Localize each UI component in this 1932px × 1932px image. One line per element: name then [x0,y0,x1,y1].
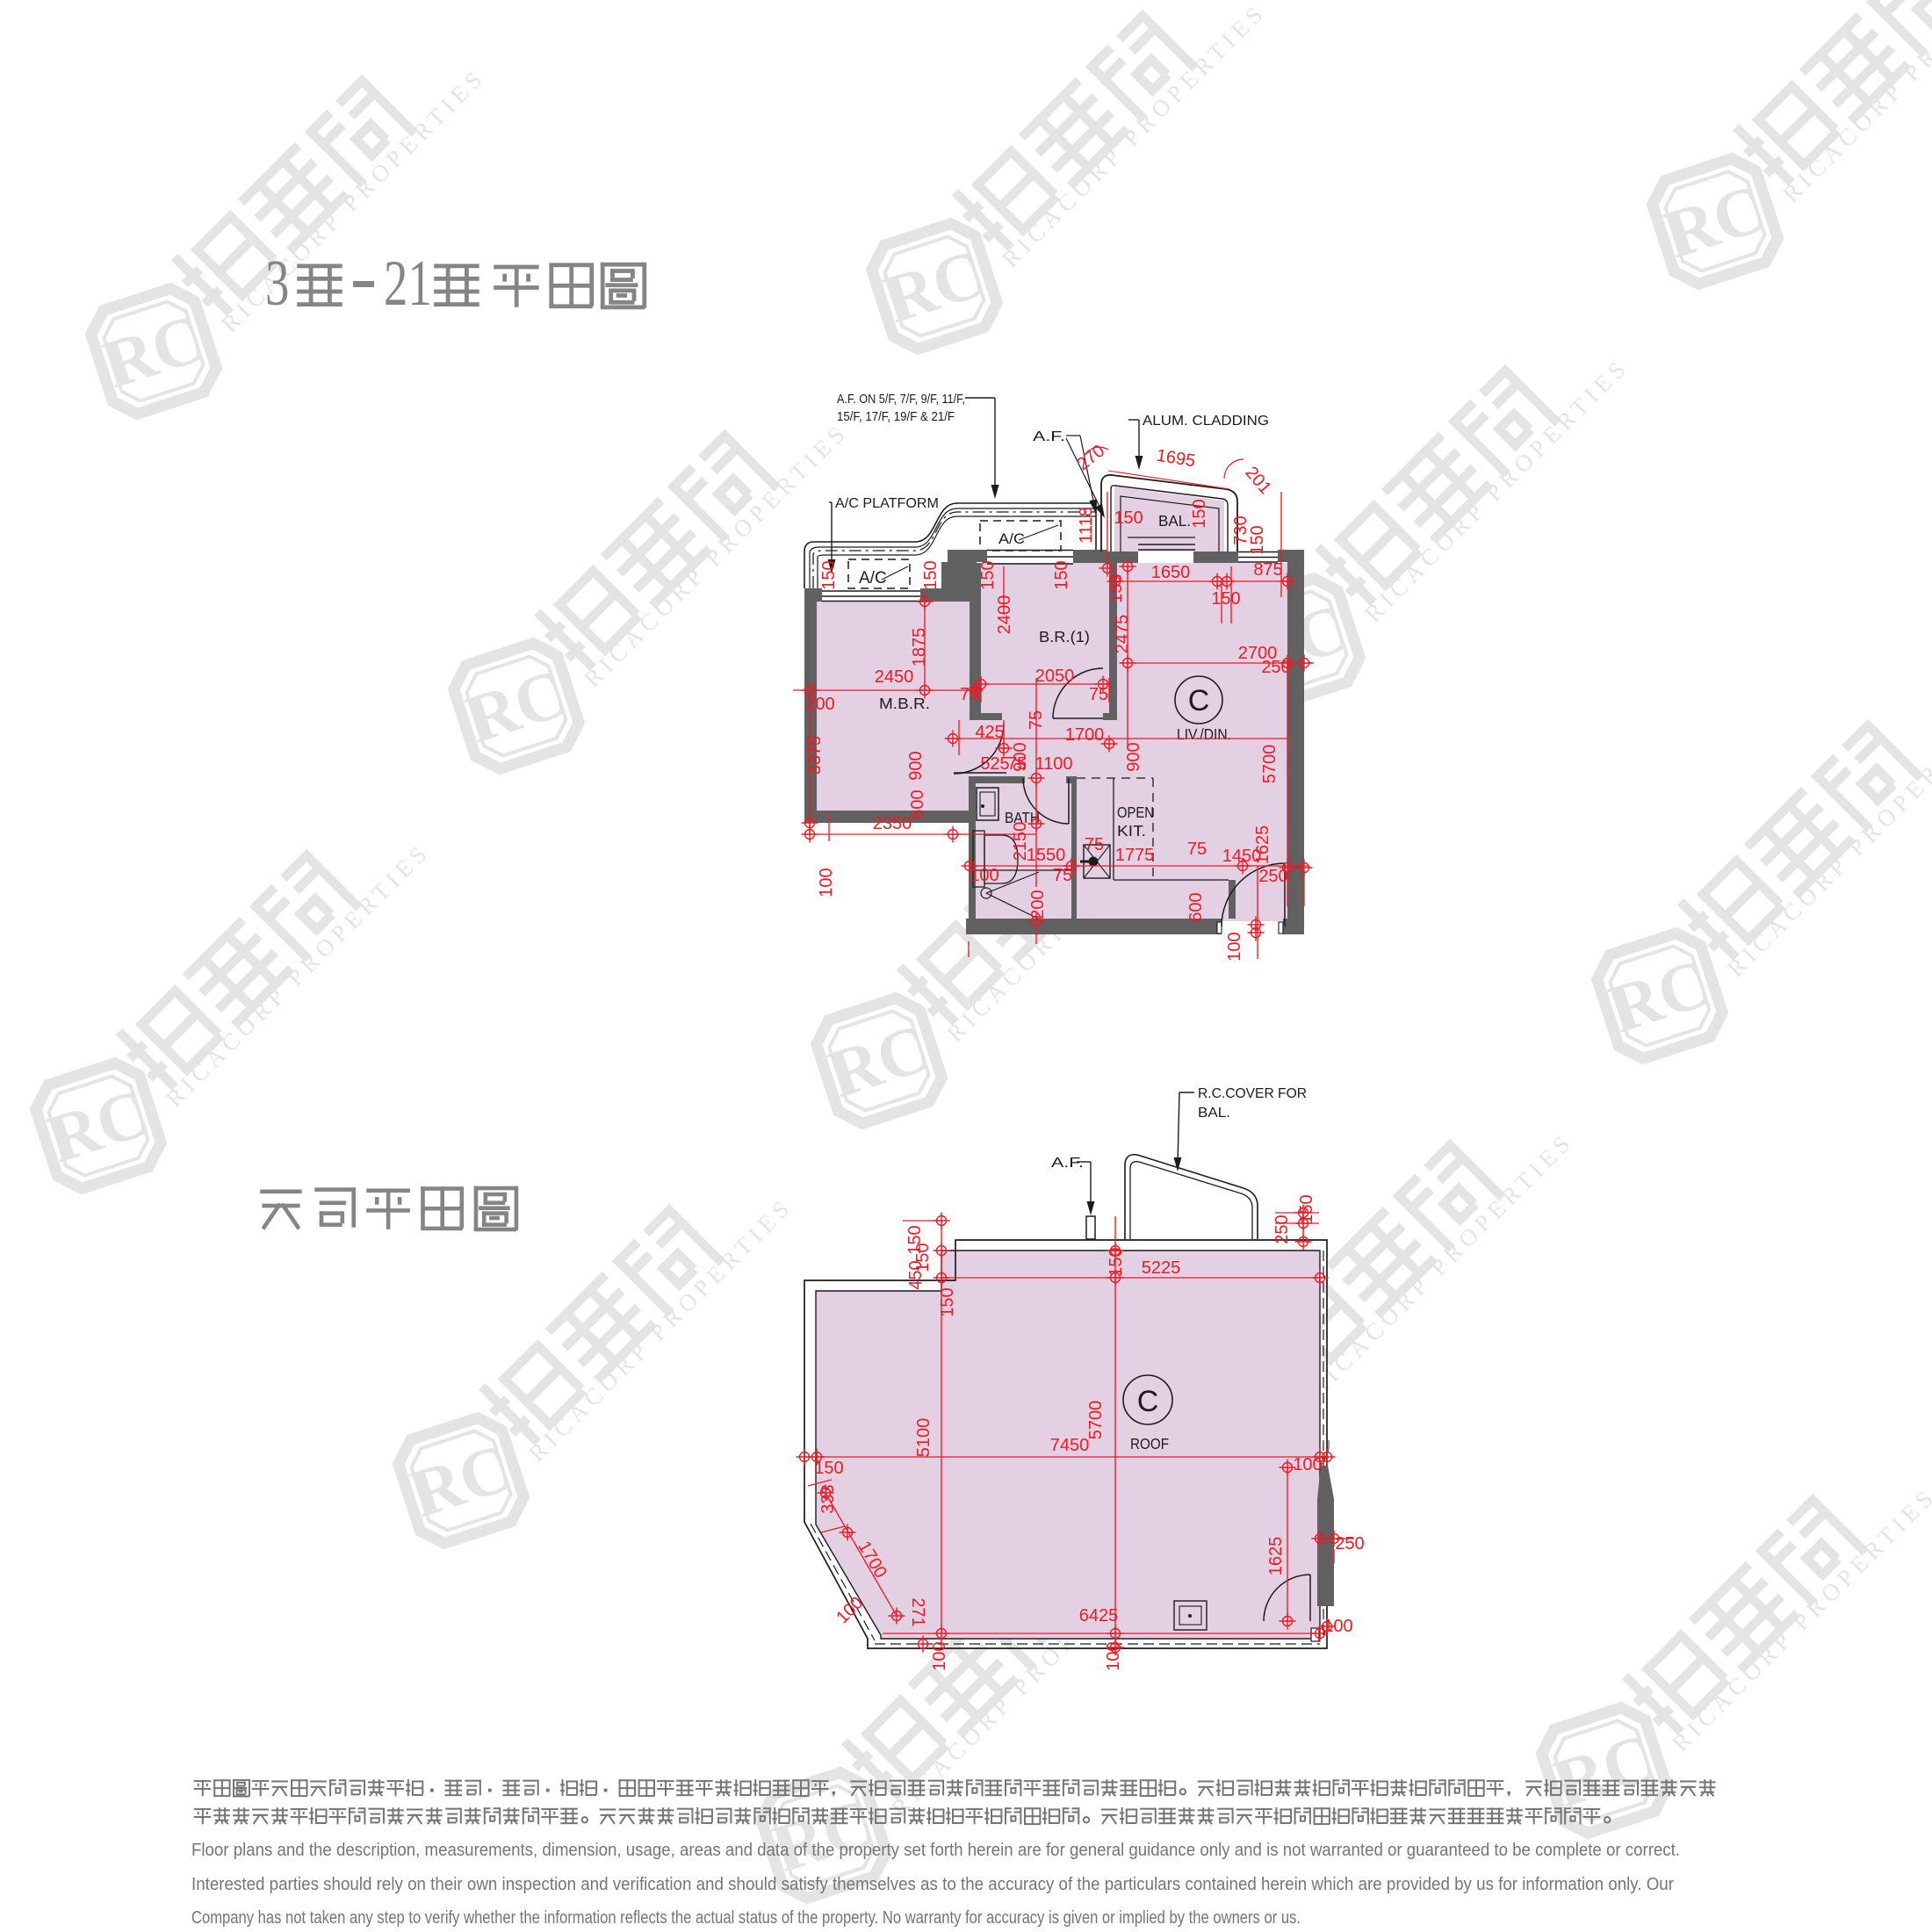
svg-text:200: 200 [1028,890,1048,919]
svg-text:A/C: A/C [859,569,887,588]
svg-text:250: 250 [1335,1534,1364,1554]
svg-text:5700: 5700 [1260,745,1280,784]
svg-text:A.F.: A.F. [1051,1156,1084,1171]
svg-text:525: 525 [980,754,1009,774]
svg-text:5225: 5225 [1142,1258,1181,1278]
svg-text:5100: 5100 [914,1418,934,1458]
svg-text:5700: 5700 [1086,1401,1106,1440]
svg-text:900: 900 [1124,742,1143,771]
svg-text:100: 100 [1104,1641,1123,1670]
svg-text:100: 100 [1323,1617,1352,1636]
svg-text:Floor plans and the descriptio: Floor plans and the description, measure… [191,1840,1680,1860]
svg-text:2450: 2450 [875,667,914,687]
svg-text:RICACORP PROPERTIES: RICACORP PROPERTIES [1359,353,1634,628]
svg-text:Interested parties should rely: Interested parties should rely on their … [191,1874,1674,1894]
svg-text:270: 270 [1073,441,1108,474]
svg-text:2050: 2050 [1035,667,1075,686]
svg-text:1700: 1700 [1065,725,1105,745]
svg-text:333: 333 [818,1484,838,1513]
svg-text:75: 75 [960,685,979,704]
svg-text:150: 150 [1114,508,1143,528]
svg-text:A.F.: A.F. [1033,429,1065,444]
svg-text:150: 150 [1107,573,1126,602]
svg-text:900: 900 [1011,742,1030,771]
svg-text:271: 271 [908,1597,927,1626]
svg-text:100: 100 [970,866,998,885]
svg-text:7450: 7450 [1050,1436,1090,1455]
svg-text:21: 21 [384,248,432,320]
svg-text:RICACORP PROPERTIES: RICACORP PROPERTIES [161,838,436,1113]
svg-text:1100: 1100 [1034,754,1072,774]
svg-text:150: 150 [1248,525,1267,554]
svg-text:250: 250 [1258,867,1287,886]
svg-text:1875: 1875 [910,628,929,667]
svg-text:600: 600 [1186,892,1206,921]
svg-text:150: 150 [1107,1247,1126,1276]
svg-text:RICACORP PROPERTIES: RICACORP PROPERTIES [1304,1128,1579,1402]
svg-text:C: C [1137,1385,1159,1418]
svg-text:600: 600 [908,789,927,818]
svg-text:150: 150 [921,560,941,589]
svg-text:150: 150 [814,1459,843,1478]
svg-text:900: 900 [906,751,926,780]
svg-text:RICACORP PROPERTIES: RICACORP PROPERTIES [1777,0,1932,207]
svg-text:250: 250 [1261,658,1290,677]
svg-text:2475: 2475 [1113,615,1132,654]
svg-text:150: 150 [1190,499,1209,528]
svg-text:ALUM. CLADDING: ALUM. CLADDING [1143,414,1269,429]
svg-text:A.F. ON 5/F, 7/F, 9/F, 11/F,: A.F. ON 5/F, 7/F, 9/F, 11/F, [837,393,965,407]
svg-text:75: 75 [1187,840,1207,859]
svg-text:1650: 1650 [1151,563,1191,582]
svg-text:2400: 2400 [995,595,1014,635]
svg-text:1625: 1625 [1253,825,1272,865]
svg-text:75: 75 [1089,685,1108,704]
svg-text:875: 875 [1253,560,1282,580]
svg-text:150: 150 [978,560,998,589]
svg-text:2350: 2350 [873,814,912,833]
svg-text:150: 150 [1052,560,1071,589]
svg-text:100: 100 [1293,1455,1322,1474]
svg-text:OPEN: OPEN [1117,804,1154,821]
svg-text:M.B.R.: M.B.R. [879,695,930,712]
svg-text:201: 201 [1241,463,1274,498]
svg-text:2150: 2150 [1011,822,1030,861]
svg-text:1118: 1118 [1077,507,1096,544]
svg-text:150: 150 [1211,589,1240,609]
svg-text:RICACORP PROPERTIES: RICACORP PROPERTIES [523,1193,798,1467]
svg-text:450: 450 [906,1260,926,1289]
svg-text:RICACORP PROPERTIES: RICACORP PROPERTIES [1667,1482,1932,1757]
svg-text:75: 75 [1027,710,1046,730]
svg-text:150: 150 [819,560,839,589]
svg-text:A/C: A/C [998,530,1025,547]
svg-text:1695: 1695 [1155,446,1196,472]
svg-text:150: 150 [1297,1194,1316,1223]
svg-text:100: 100 [817,868,836,897]
svg-text:100: 100 [930,1641,949,1670]
svg-text:1625: 1625 [1266,1537,1286,1576]
svg-text:A/C PLATFORM: A/C PLATFORM [835,496,939,511]
svg-text:R.C.COVER FOR: R.C.COVER FOR [1198,1086,1307,1101]
svg-text:250: 250 [1272,1215,1292,1244]
svg-text:200: 200 [805,695,834,714]
svg-text:75: 75 [1053,866,1072,885]
svg-text:RICACORP PROPERTIES: RICACORP PROPERTIES [997,0,1272,272]
svg-text:B.R.(1): B.R.(1) [1039,628,1090,645]
svg-text:425: 425 [975,723,1004,742]
svg-text:6425: 6425 [1079,1606,1119,1626]
svg-text:KIT.: KIT. [1117,822,1146,840]
svg-text:BAL.: BAL. [1158,512,1191,530]
svg-text:Company has not taken any step: Company has not taken any step to verify… [191,1907,1301,1928]
svg-text:15/F, 17/F, 19/F & 21/F: 15/F, 17/F, 19/F & 21/F [837,410,955,424]
svg-text:3375: 3375 [805,736,825,775]
svg-text:1550: 1550 [1027,846,1066,865]
svg-text:BAL.: BAL. [1198,1106,1230,1121]
svg-text:100: 100 [1225,932,1244,961]
svg-text:LIV./DIN.: LIV./DIN. [1177,725,1231,743]
svg-text:C: C [1188,684,1210,717]
svg-text:150: 150 [938,1287,957,1316]
svg-text:ROOF: ROOF [1130,1435,1169,1453]
svg-text:1775: 1775 [1115,846,1155,865]
svg-text:3: 3 [265,248,289,320]
svg-text:75: 75 [1085,835,1104,854]
